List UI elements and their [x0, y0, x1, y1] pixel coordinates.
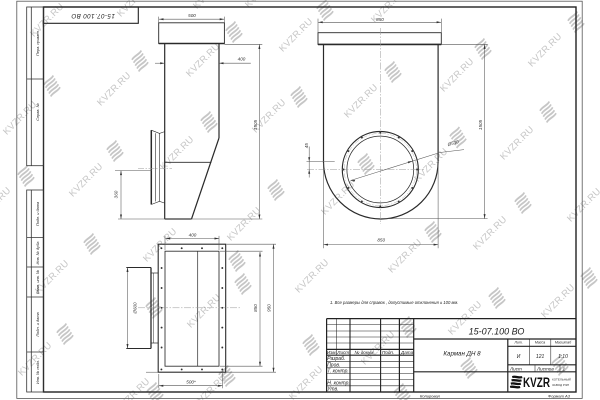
svg-text:Взам. инв. №: Взам. инв. №: [35, 269, 40, 294]
svg-text:Листов: Листов: [536, 367, 554, 372]
svg-text:45: 45: [304, 143, 309, 149]
svg-text:1. Все размеры для справок ,: 1. Все размеры для справок , допустимые …: [330, 300, 458, 305]
svg-text:Подп. и дата: Подп. и дата: [35, 201, 40, 226]
svg-text:500: 500: [188, 13, 196, 18]
svg-text:Т. контр.: Т. контр.: [327, 368, 349, 374]
svg-text:ЗАВОД РЭП: ЗАВОД РЭП: [552, 383, 569, 387]
svg-text:Ø600: Ø600: [133, 302, 138, 315]
svg-text:1:10: 1:10: [558, 354, 568, 360]
svg-text:Лист: Лист: [509, 367, 522, 372]
svg-text:15-07.100 ВО: 15-07.100 ВО: [469, 326, 525, 336]
svg-text:400: 400: [189, 232, 197, 237]
svg-text:1505: 1505: [478, 119, 483, 130]
svg-text:Утв.: Утв.: [327, 387, 338, 393]
svg-text:КОТЕЛЬНЫЙ: КОТЕЛЬНЫЙ: [552, 378, 571, 382]
svg-text:400: 400: [238, 57, 246, 62]
svg-text:Подп. и дата: Подп. и дата: [35, 311, 40, 336]
svg-text:1: 1: [563, 367, 566, 372]
svg-text:Копировал: Копировал: [420, 393, 441, 398]
svg-text:Перв. примен.: Перв. примен.: [35, 30, 40, 56]
svg-text:Инв. № дубл.: Инв. № дубл.: [35, 241, 40, 265]
svg-text:121: 121: [536, 354, 545, 360]
svg-text:950: 950: [267, 304, 272, 312]
svg-text:Изм.: Изм.: [327, 350, 337, 355]
svg-text:850: 850: [253, 304, 258, 312]
svg-text:Лит.: Лит.: [513, 341, 522, 345]
svg-text:360: 360: [114, 190, 119, 198]
svg-text:Дата: Дата: [400, 350, 414, 355]
svg-text:850: 850: [376, 17, 384, 22]
svg-text:Н. контр.: Н. контр.: [327, 381, 350, 387]
svg-text:KVZR: KVZR: [523, 375, 550, 390]
svg-text:Формат А3: Формат А3: [548, 393, 571, 398]
svg-text:№ докум.: № докум.: [355, 350, 375, 355]
svg-text:850: 850: [377, 238, 385, 243]
svg-text:Лист: Лист: [336, 350, 349, 355]
svg-text:Масса: Масса: [535, 341, 545, 345]
svg-text:Разраб.: Разраб.: [327, 356, 345, 362]
svg-text:Справ. №: Справ. №: [35, 102, 40, 120]
svg-text:Масштаб: Масштаб: [555, 341, 572, 345]
svg-text:И: И: [517, 354, 521, 360]
svg-text:500*: 500*: [186, 379, 196, 384]
svg-text:Карман ДН 8: Карман ДН 8: [443, 351, 481, 358]
svg-text:15-07.100 ВО: 15-07.100 ВО: [71, 12, 115, 19]
svg-text:1505: 1505: [253, 119, 258, 130]
svg-text:Инв. № подл.: Инв. № подл.: [35, 360, 40, 384]
svg-text:Подп.: Подп.: [382, 350, 394, 355]
